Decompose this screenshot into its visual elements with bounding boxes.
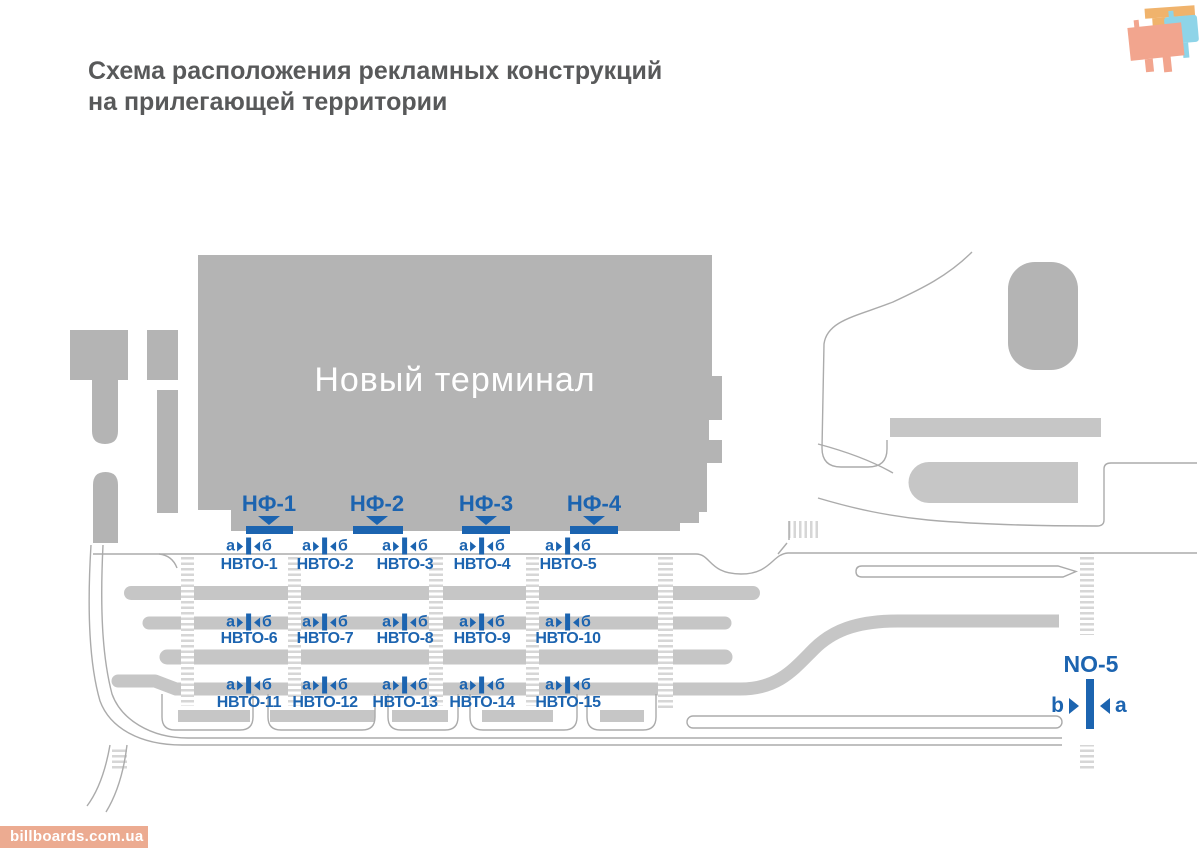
arrow-right-icon (237, 680, 243, 690)
side-letter-a: а (226, 538, 235, 554)
billboard-bar (565, 538, 570, 555)
nvto-sign-label: НВТО-8 (377, 630, 434, 648)
nvto-sign-label: НВТО-2 (297, 556, 354, 574)
side-letter-b: б (262, 614, 272, 630)
ab-sides-marker: аб (382, 538, 428, 555)
nf-sign-bar (246, 526, 293, 534)
building-block-west-4 (93, 472, 118, 543)
side-letter-b: б (581, 677, 591, 693)
nvto-sign-label: НВТО-5 (540, 556, 597, 574)
terminal-label: Новый терминал (314, 361, 595, 399)
side-letter-a: а (459, 677, 468, 693)
side-letter-a: а (302, 677, 311, 693)
ab-sides-marker: аб (226, 677, 272, 694)
nvto-sign-label: НВТО-15 (535, 694, 600, 712)
watermark: billboards.com.ua (0, 826, 148, 848)
side-letter-a: а (382, 614, 391, 630)
arrow-right-icon (556, 680, 562, 690)
arrow-right-icon (470, 541, 476, 551)
ab-sides-marker: аб (545, 614, 591, 631)
arrow-left-icon (254, 541, 260, 551)
no5-sign-bar (1086, 679, 1094, 729)
ab-sides-marker: аб (382, 677, 428, 694)
side-letter-b: б (581, 614, 591, 630)
arrow-left-icon (573, 541, 579, 551)
side-letter-a: а (302, 614, 311, 630)
side-letter-a: а (226, 614, 235, 630)
nvto-sign-label: НВТО-10 (535, 630, 600, 648)
arrow-right-icon (237, 541, 243, 551)
billboard-bar (565, 614, 570, 631)
ab-sides-marker: аб (302, 677, 348, 694)
arrow-right-icon (237, 617, 243, 627)
ab-sides-marker: аб (226, 538, 272, 555)
ab-sides-marker: аб (459, 614, 505, 631)
side-letter-b: б (418, 538, 428, 554)
side-letter-a: а (302, 538, 311, 554)
page-title-line2: на прилегающей территории (88, 87, 662, 118)
nvto-sign-label: НВТО-6 (221, 630, 278, 648)
nf-sign-label: НФ-3 (459, 495, 513, 513)
side-letter-b: б (418, 677, 428, 693)
billboard-bar (479, 677, 484, 694)
side-letter-b: б (495, 614, 505, 630)
road-outline (818, 444, 893, 473)
nvto-sign-label: НВТО-14 (449, 694, 514, 712)
nvto-sign-label: НВТО-11 (217, 694, 281, 712)
arrow-right-icon (470, 617, 476, 627)
arrow-left-icon (487, 680, 493, 690)
arrow-left-icon (330, 680, 336, 690)
crosswalk-strip (789, 521, 818, 538)
billboard-bar (402, 614, 407, 631)
side-letter-a: а (545, 614, 554, 630)
side-letter-a: а (459, 538, 468, 554)
nf-sign-arrow-icon (583, 516, 605, 525)
crosswalk-strip (658, 556, 673, 711)
nf-sign-label: НФ-4 (567, 495, 621, 513)
nf-sign-bar (353, 526, 403, 534)
billboard-bar (402, 677, 407, 694)
arrow-left-icon (254, 617, 260, 627)
arrow-left-icon (254, 680, 260, 690)
arrow-right-icon (1069, 698, 1079, 714)
side-letter-b: б (581, 538, 591, 554)
ab-sides-marker: аб (382, 614, 428, 631)
ab-sides-marker: аб (459, 538, 505, 555)
arrow-left-icon (573, 680, 579, 690)
building-block-west-1 (70, 330, 128, 444)
crosswalk-strip (1080, 745, 1094, 769)
arrow-right-icon (393, 541, 399, 551)
arrow-left-icon (487, 617, 493, 627)
nf-sign-arrow-icon (258, 516, 280, 525)
arrow-right-icon (313, 680, 319, 690)
road-outline (778, 543, 787, 554)
arrow-right-icon (313, 617, 319, 627)
nvto-sign-label: НВТО-4 (454, 556, 511, 574)
no5-letter-b: b (1051, 694, 1064, 718)
arrow-left-icon (487, 541, 493, 551)
road-outline (159, 554, 177, 568)
side-letter-b: б (262, 538, 272, 554)
arrow-left-icon (410, 541, 416, 551)
billboard-bar (402, 538, 407, 555)
arrow-right-icon (470, 680, 476, 690)
billboard-bar (479, 614, 484, 631)
arrow-left-icon (330, 617, 336, 627)
arrow-left-icon (410, 680, 416, 690)
side-letter-a: а (382, 677, 391, 693)
road-outline (87, 745, 110, 806)
page-title: Схема расположения рекламных конструкций… (88, 56, 662, 118)
arrow-right-icon (393, 617, 399, 627)
arrow-left-icon (1100, 698, 1110, 714)
nvto-sign-label: НВТО-7 (297, 630, 354, 648)
page-title-line1: Схема расположения рекламных конструкций (88, 56, 662, 87)
arrow-left-icon (330, 541, 336, 551)
nvto-sign-label: НВТО-3 (377, 556, 434, 574)
no5-letter-a: a (1115, 694, 1127, 718)
billboard-bar (246, 677, 251, 694)
side-letter-b: б (338, 677, 348, 693)
billboard-bar (479, 538, 484, 555)
billboard-bar (322, 614, 327, 631)
nvto-sign-label: НВТО-12 (292, 694, 357, 712)
billboards-logo-icon (1127, 5, 1200, 75)
crosswalk-strip (181, 557, 194, 706)
parking-island (909, 462, 1079, 503)
nf-sign-bar (462, 526, 510, 534)
side-letter-a: а (382, 538, 391, 554)
lane-outline (856, 566, 1076, 577)
billboard-bar (565, 677, 570, 694)
side-letter-a: а (459, 614, 468, 630)
side-letter-b: б (338, 614, 348, 630)
side-letter-b: б (338, 538, 348, 554)
side-letter-b: б (418, 614, 428, 630)
arrow-right-icon (556, 617, 562, 627)
side-letter-a: а (545, 677, 554, 693)
nvto-sign-label: НВТО-9 (454, 630, 511, 648)
ab-sides-marker: аб (302, 614, 348, 631)
side-letter-b: б (495, 677, 505, 693)
side-letter-a: а (545, 538, 554, 554)
no5-side-b: b (1051, 694, 1079, 718)
no5-sign-label: NO-5 (1064, 652, 1119, 676)
nf-sign-label: НФ-1 (242, 495, 296, 513)
arrow-right-icon (556, 541, 562, 551)
ab-sides-marker: аб (545, 677, 591, 694)
nf-sign-arrow-icon (366, 516, 388, 525)
nf-sign-label: НФ-2 (350, 495, 404, 513)
building-block-east (1008, 262, 1078, 370)
nvto-sign-label: НВТО-1 (221, 556, 278, 574)
lane-outline (687, 716, 1062, 728)
arrow-left-icon (410, 617, 416, 627)
billboard-bar (322, 677, 327, 694)
ab-sides-marker: аб (545, 538, 591, 555)
nf-sign-bar (570, 526, 618, 534)
ab-sides-marker: аб (459, 677, 505, 694)
parking-island (890, 418, 1101, 437)
arrow-right-icon (393, 680, 399, 690)
billboard-bar (246, 538, 251, 555)
side-letter-b: б (262, 677, 272, 693)
arrow-right-icon (313, 541, 319, 551)
ab-sides-marker: аб (226, 614, 272, 631)
building-block-west-3 (157, 390, 178, 513)
billboard-bar (246, 614, 251, 631)
side-letter-b: б (495, 538, 505, 554)
scheme-page: Новый терминал (0, 0, 1200, 848)
parking-island (600, 710, 644, 722)
crosswalk-strip (1080, 553, 1094, 635)
site-map: Новый терминал (0, 0, 1200, 848)
billboard-bar (322, 538, 327, 555)
nf-sign-arrow-icon (475, 516, 497, 525)
side-letter-a: а (226, 677, 235, 693)
arrow-left-icon (573, 617, 579, 627)
ab-sides-marker: аб (302, 538, 348, 555)
no5-side-a: a (1100, 694, 1127, 718)
building-block-west-2 (147, 330, 178, 380)
nvto-sign-label: НВТО-13 (372, 694, 437, 712)
